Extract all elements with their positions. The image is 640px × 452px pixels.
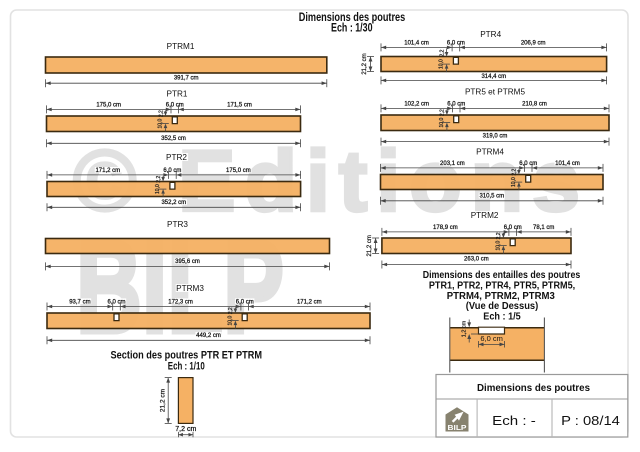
svg-text:10,0: 10,0	[227, 316, 233, 326]
svg-text:PTRM4: PTRM4	[476, 147, 504, 156]
svg-text:172,3 cm: 172,3 cm	[168, 299, 193, 305]
svg-text:6,0 cm: 6,0 cm	[163, 168, 181, 174]
svg-text:PTRM1: PTRM1	[167, 42, 195, 51]
svg-text:171,2 cm: 171,2 cm	[95, 168, 120, 174]
svg-text:10,0: 10,0	[158, 119, 164, 129]
svg-text:352,2 cm: 352,2 cm	[161, 200, 186, 206]
svg-text:6,0 cm: 6,0 cm	[166, 102, 184, 108]
svg-text:352,5 cm: 352,5 cm	[161, 136, 186, 142]
svg-text:101,4 cm: 101,4 cm	[555, 161, 580, 167]
svg-text:6,0 cm: 6,0 cm	[519, 161, 537, 167]
svg-text:6,0 cm: 6,0 cm	[480, 334, 503, 343]
svg-text:BILP: BILP	[448, 423, 467, 432]
svg-text:319,0 cm: 319,0 cm	[483, 133, 508, 139]
svg-text:93,7 cm: 93,7 cm	[69, 299, 90, 305]
svg-text:314,4 cm: 314,4 cm	[481, 74, 506, 80]
svg-text:PTR2: PTR2	[166, 153, 187, 162]
svg-text:171,5 cm: 171,5 cm	[227, 102, 252, 108]
svg-text:2,2: 2,2	[512, 169, 518, 176]
svg-text:10,0: 10,0	[155, 184, 161, 194]
svg-text:10,0: 10,0	[439, 59, 445, 69]
svg-text:PTR4: PTR4	[480, 30, 501, 39]
svg-text:2,2: 2,2	[439, 49, 445, 56]
svg-text:P : 08/14: P : 08/14	[561, 413, 620, 428]
svg-text:7,2 cm: 7,2 cm	[175, 426, 196, 433]
svg-text:102,2 cm: 102,2 cm	[404, 101, 429, 107]
svg-text:203,1 cm: 203,1 cm	[440, 161, 465, 167]
svg-text:178,9 cm: 178,9 cm	[433, 225, 458, 231]
svg-text:171,2 cm: 171,2 cm	[297, 299, 322, 305]
svg-text:2,2: 2,2	[156, 176, 162, 183]
svg-text:175,0 cm: 175,0 cm	[96, 102, 121, 108]
svg-text:Ech : 1/10: Ech : 1/10	[168, 361, 205, 373]
svg-text:6,0 cm: 6,0 cm	[504, 225, 522, 231]
svg-text:206,9 cm: 206,9 cm	[521, 40, 546, 46]
svg-text:Dimensions des poutres: Dimensions des poutres	[477, 382, 590, 394]
svg-text:2,2: 2,2	[496, 232, 502, 239]
svg-text:6,0 cm: 6,0 cm	[447, 40, 465, 46]
svg-text:PTR5 et PTRM5: PTR5 et PTRM5	[465, 87, 526, 96]
svg-text:78,1 cm: 78,1 cm	[533, 225, 554, 231]
svg-text:PTR3: PTR3	[167, 220, 188, 229]
svg-text:21,2 cm: 21,2 cm	[362, 53, 368, 74]
svg-text:6,0 cm: 6,0 cm	[447, 101, 465, 107]
svg-text:391,7 cm: 391,7 cm	[174, 76, 199, 82]
svg-text:101,4 cm: 101,4 cm	[404, 40, 429, 46]
svg-text:21,2 cm: 21,2 cm	[367, 235, 373, 256]
svg-text:6,0 cm: 6,0 cm	[236, 299, 254, 305]
svg-text:10,0: 10,0	[511, 177, 517, 187]
svg-text:310,5 cm: 310,5 cm	[479, 194, 504, 200]
svg-text:1,2 cm: 1,2 cm	[461, 320, 467, 337]
svg-text:Ech : -: Ech : -	[492, 413, 536, 428]
svg-text:2,2: 2,2	[158, 110, 164, 117]
svg-text:175,0 cm: 175,0 cm	[226, 168, 251, 174]
svg-text:2,2: 2,2	[440, 109, 446, 116]
svg-text:10,0: 10,0	[439, 118, 445, 128]
svg-text:6,0 cm: 6,0 cm	[107, 299, 125, 305]
svg-text:2,2: 2,2	[228, 307, 234, 314]
svg-text:Ech : 1/30: Ech : 1/30	[331, 23, 373, 35]
svg-text:PTRM2: PTRM2	[471, 211, 499, 220]
svg-text:395,6 cm: 395,6 cm	[175, 259, 200, 265]
svg-text:449,2 cm: 449,2 cm	[196, 333, 221, 339]
svg-text:10,0: 10,0	[495, 241, 501, 251]
svg-text:21,2 cm: 21,2 cm	[160, 389, 167, 412]
svg-text:PTR1: PTR1	[167, 89, 188, 98]
svg-text:263,0 cm: 263,0 cm	[464, 257, 489, 263]
svg-text:210,8 cm: 210,8 cm	[522, 101, 547, 107]
svg-text:PTRM3: PTRM3	[176, 284, 204, 293]
svg-text:Ech : 1/5: Ech : 1/5	[483, 310, 521, 322]
